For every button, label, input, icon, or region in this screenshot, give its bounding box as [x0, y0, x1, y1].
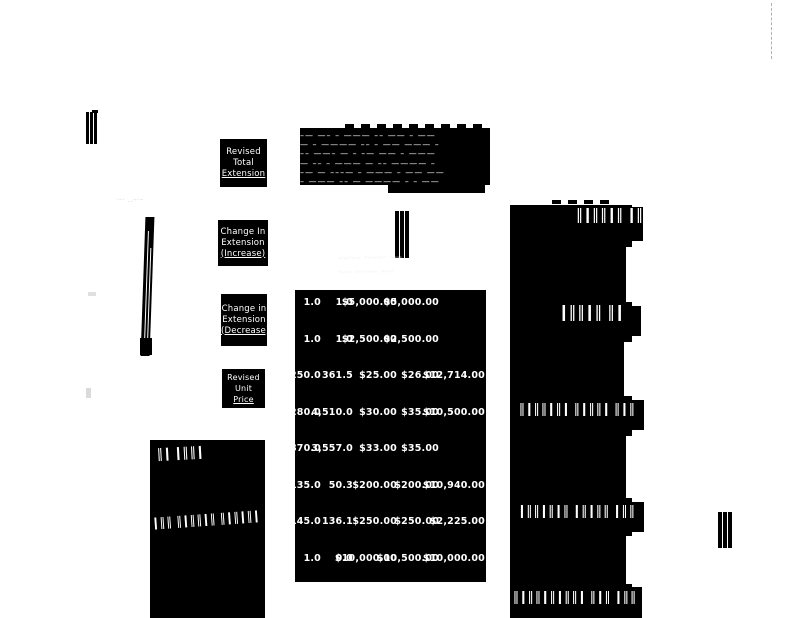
table-cell: 136.1 [322, 516, 353, 527]
scanned-document-page: –— —– – ——— –– —— – —— — – ———— –– – —— … [0, 0, 800, 618]
label-line: Extension [218, 238, 268, 249]
illegible-line-bottom-left: ║┃ ┃║║┃ [156, 446, 204, 461]
ink-speck [86, 388, 91, 398]
table-cell: $10,940.00 [423, 480, 485, 491]
label-line: (Increase) [218, 249, 268, 260]
table-cell: 250.0 [290, 370, 321, 381]
edge-notch [624, 342, 632, 396]
table-cell: 50.3 [329, 480, 353, 491]
table-cell: $30.00 [359, 407, 397, 418]
table-cell: $33.00 [359, 443, 397, 454]
table-row: 135.050.3$200.00$200.00$10,940.00 [295, 473, 486, 510]
ink-bump [630, 306, 641, 336]
ink-bar-left-upper [141, 217, 155, 356]
table-cell: $250.00 [352, 516, 397, 527]
ink-mark-top-left [86, 112, 97, 144]
edge-notch [626, 536, 632, 584]
label-line: Extension [221, 315, 267, 326]
table-row: 2,870.03,557.0$33.00$35.00 [295, 436, 486, 473]
label-line: Revised [220, 147, 267, 158]
faint-ghost-text: ––·–– ·–––· ·–– ·–– –·––– ––· [338, 250, 448, 280]
label-line: Change in [221, 304, 267, 315]
ink-protrusion-top-block [388, 184, 485, 193]
label-change-in-extension-increase: Change In Extension (Increase) [218, 220, 268, 266]
label-line: Price [222, 394, 265, 405]
label-revised-total-extension: Revised Total Extension [220, 139, 267, 187]
ink-bar-left-upper-foot [140, 338, 152, 355]
scan-serration-right-block [552, 200, 616, 204]
faint-smudge-text: ·–· ‥–·– [116, 196, 170, 204]
label-change-in-extension-decrease: Change in Extension (Decrease) [221, 294, 267, 346]
table-cell: 1.0 [304, 297, 321, 308]
illegible-footer-right: ║┃║║┃║┃║║┃ ║┃║ ┃║║ [512, 591, 637, 604]
table-row: 1.01.0$2,500.00$2,500.00 [295, 327, 486, 364]
label-line: Revised [222, 372, 265, 383]
table-cell: $12,714.00 [423, 370, 485, 381]
table-cell: $10,500.00 [423, 407, 485, 418]
faint-ghost-line: ·–– –·––– ––· [338, 264, 448, 280]
extension-table: 1.01.0$5,000.00$5,000.001.01.0$2,500.00$… [295, 290, 486, 582]
table-cell: $5,000.00 [384, 297, 439, 308]
table-row: 1.00.0$10,000.00$10,500.00$10,000.00 [295, 546, 486, 583]
table-cell: $2,225.00 [430, 516, 485, 527]
table-cell: 3,557.0 [311, 443, 353, 454]
illegible-text-block-top: –— —– – ——— –– —— – —— — – ———— –– – —— … [300, 128, 490, 185]
table-row: 4,280.04,510.0$30.00$35.00$10,500.00 [295, 400, 486, 437]
illegible-line: — – ———— –– – —— ——— – [300, 140, 490, 149]
label-line: Extension [220, 169, 267, 180]
illegible-line: –— — –––— – ——— – —— —— [300, 168, 490, 177]
table-cell: 1.0 [304, 553, 321, 564]
ink-mark-bottom-right [718, 512, 732, 548]
fold-line-top-right [771, 3, 772, 59]
label-line: (Decrease) [221, 326, 267, 337]
illegible-line: –— —– – ——— –– —— – —— [300, 131, 490, 140]
edge-notch [626, 247, 632, 302]
table-cell: $200.00 [352, 480, 397, 491]
illegible-line: — –– – ——— — –– ———— – [300, 159, 490, 168]
table-cell: $25.00 [359, 370, 397, 381]
label-line: Unit [222, 383, 265, 394]
edge-notch [626, 436, 632, 498]
illegible-line-right: ║┃║║┃║┃ ║┃║║┃ ║┃║ [518, 403, 635, 416]
table-cell: 145.0 [290, 516, 321, 527]
ink-speck [88, 292, 96, 296]
table-cell: 135.0 [290, 480, 321, 491]
table-row: 250.0361.5$25.00$26.00$12,714.00 [295, 363, 486, 400]
illegible-line-right: ┃║║┃║┃║ ┃║┃║║ ┃║║ [518, 505, 635, 518]
table-cell: $35.00 [401, 443, 439, 454]
table-cell: 4,510.0 [311, 407, 353, 418]
label-revised-unit-price: Revised Unit Price [222, 369, 265, 408]
table-row: 145.0136.1$250.00$250.00$2,225.00 [295, 509, 486, 546]
illegible-line: –– ——– — – –— —— – ——— [300, 149, 490, 158]
illegible-heading-right: ║┃║║┃║ ┃║║ [575, 208, 651, 223]
label-line: Total [220, 158, 267, 169]
table-cell: $2,500.00 [384, 334, 439, 345]
illegible-subtotal-right: ┃║║┃║ ║┃ [559, 305, 624, 321]
table-cell: 361.5 [322, 370, 353, 381]
ink-tick-top-left [92, 110, 98, 113]
label-line: Change In [218, 227, 268, 238]
table-cell: $10,000.00 [423, 553, 485, 564]
table-cell: 1.0 [304, 334, 321, 345]
table-row: 1.01.0$5,000.00$5,000.00 [295, 290, 486, 327]
illegible-text-block-bottom-left [150, 440, 265, 618]
